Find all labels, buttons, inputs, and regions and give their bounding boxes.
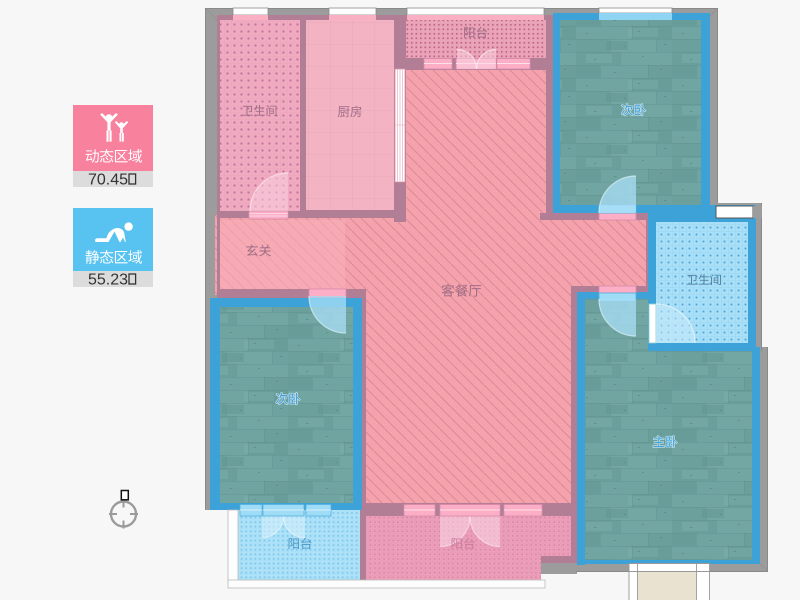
svg-text:55.23: 55.23	[88, 272, 128, 289]
svg-text:70.45: 70.45	[88, 172, 128, 189]
